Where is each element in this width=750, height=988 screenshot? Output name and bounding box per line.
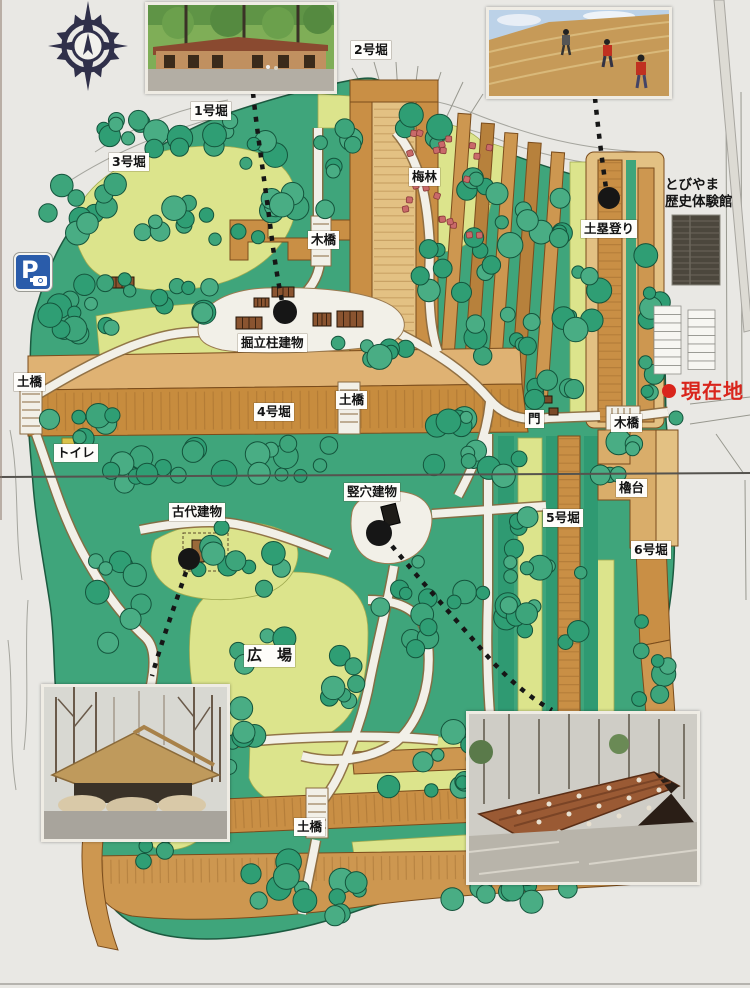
label-earthwork-climbing: 土塁登り [581,220,637,238]
label-turret-platform: 櫓台 [616,479,647,497]
label-wooden-bridge-east: 木橋 [611,414,642,432]
camera-icon [33,276,47,286]
facility-name-line2: 歴史体験館 [665,194,733,211]
label-moat-6: 6号堀 [631,541,671,559]
label-earth-bridge-center: 土橋 [336,391,367,409]
photo-entrance-buildings [145,2,337,94]
photo-entrance-buildings-image [148,5,334,91]
photo-ancient-building-image [44,687,227,839]
single-tree [669,411,683,425]
label-plum-grove: 梅林 [409,168,440,186]
label-pillar-buildings: 掘立柱建物 [238,334,307,352]
photo-earthwork-climbing [486,7,672,99]
label-moat-2: 2号堀 [351,41,391,59]
photo-earthwork-climbing-image [489,10,669,96]
facility-name-label: とびやま 歴史体験館 [662,177,736,211]
label-moat-4: 4号堀 [254,403,294,421]
current-location-label: 現在地 [678,377,747,406]
label-gate: 門 [525,410,544,428]
label-moat-3: 3号堀 [109,153,149,171]
facility-name-line1: とびやま [665,177,733,194]
label-plaza: 広 場 [244,645,295,667]
photo-pit-building [466,711,700,885]
photo-ancient-building [41,684,230,842]
label-earth-bridge-south: 土橋 [294,818,325,836]
label-ancient-building: 古代建物 [169,503,225,521]
photo-pit-building-image [469,714,697,882]
label-wooden-bridge-north: 木橋 [308,231,339,249]
park-guide-sign: 1号堀 2号堀 3号堀 梅林 木橋 掘立柱建物 土橋 土橋 4号堀 トイレ 門 … [0,0,750,988]
current-location-dot [662,384,676,398]
label-pit-building: 竪穴建物 [344,483,400,501]
label-toilet: トイレ [54,444,98,462]
label-moat-5: 5号堀 [543,509,583,527]
label-moat-1: 1号堀 [191,102,231,120]
label-earth-bridge-west: 土橋 [14,373,45,391]
parking-sign: P [14,253,52,291]
